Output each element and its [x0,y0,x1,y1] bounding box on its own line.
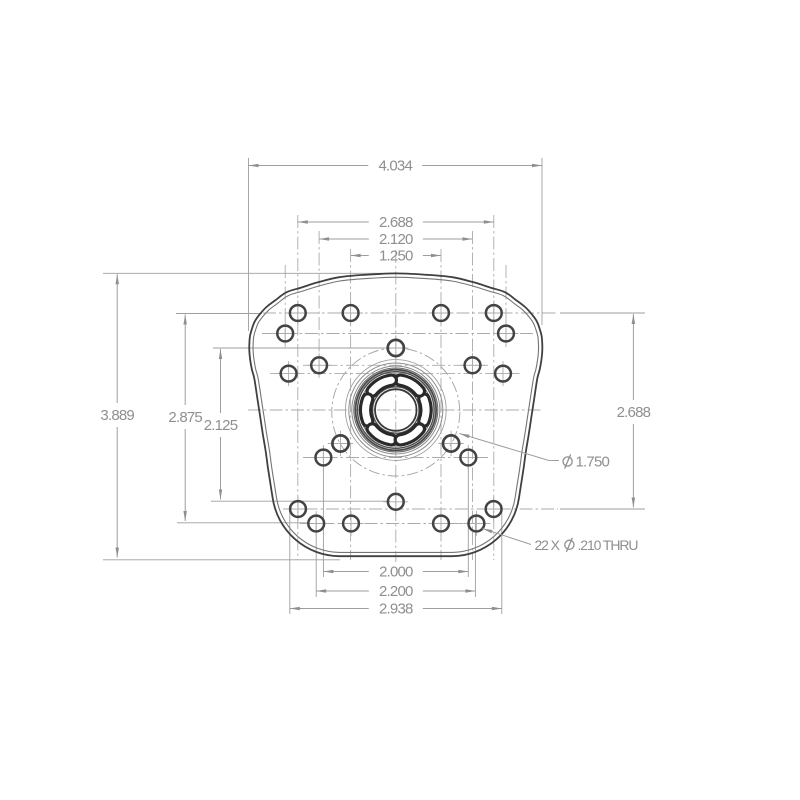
svg-text:2.875: 2.875 [168,409,202,426]
svg-text:2.688: 2.688 [379,214,413,231]
svg-text:2.938: 2.938 [379,601,413,618]
svg-text:1.750: 1.750 [576,454,610,471]
svg-text:2.000: 2.000 [379,564,413,581]
svg-text:22 X: 22 X [535,537,561,553]
svg-text:3.889: 3.889 [100,407,134,424]
svg-text:2.125: 2.125 [204,417,238,434]
svg-text:2.688: 2.688 [617,404,651,421]
svg-text:.210 THRU: .210 THRU [578,537,639,553]
svg-text:1.250: 1.250 [379,248,413,265]
svg-text:2.200: 2.200 [379,583,413,600]
svg-text:4.034: 4.034 [378,158,412,175]
svg-text:2.120: 2.120 [379,231,413,248]
